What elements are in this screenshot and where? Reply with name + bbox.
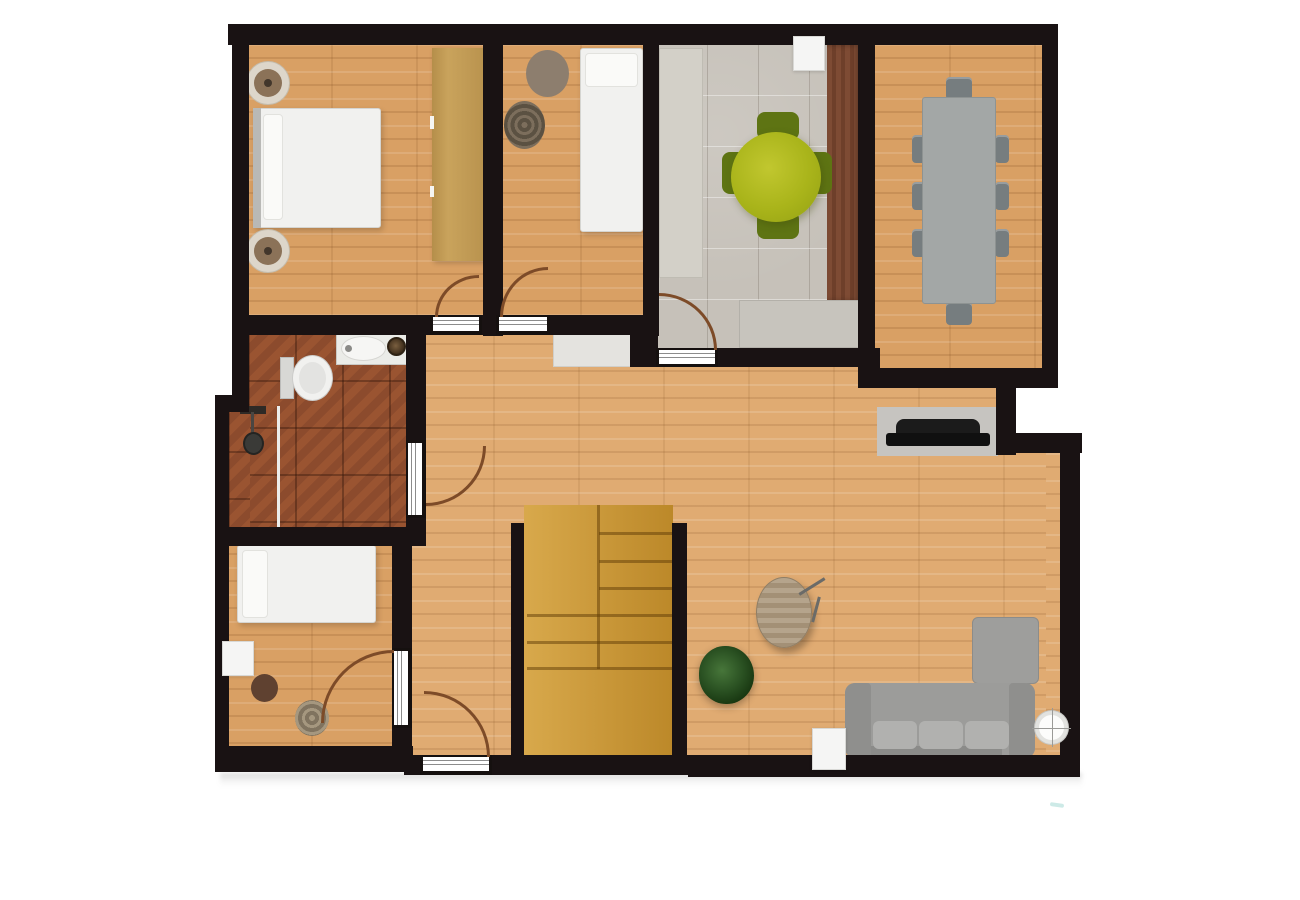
single-bed-3-pillow bbox=[242, 550, 268, 618]
exterior-notch bbox=[1016, 388, 1088, 435]
sofa-cushion-3 bbox=[965, 721, 1009, 749]
nightstand-bottom-knob bbox=[264, 247, 272, 255]
sofa-armrest-left bbox=[845, 683, 871, 758]
dining-chair-bottom bbox=[946, 302, 972, 325]
sofa-cushion-2 bbox=[919, 721, 963, 749]
wall-left-upper bbox=[232, 24, 249, 405]
ottoman bbox=[972, 617, 1039, 684]
dining-table bbox=[922, 97, 996, 304]
wardrobe bbox=[432, 48, 485, 261]
round-green-table bbox=[731, 132, 821, 222]
double-bed-headboard bbox=[253, 108, 261, 228]
stair-tread-5 bbox=[527, 641, 673, 644]
stair-tread-6 bbox=[527, 667, 673, 670]
wall-bathroom-bottom bbox=[215, 527, 426, 546]
wall-stairs-left bbox=[511, 523, 524, 757]
potted-plant bbox=[699, 646, 754, 704]
wall-stairs-right bbox=[672, 523, 687, 757]
stair-tread-1 bbox=[599, 532, 673, 535]
wall-bottom-left bbox=[215, 746, 413, 772]
bathroom-shower-alcove-floor bbox=[228, 404, 250, 531]
toilet-seat bbox=[299, 362, 326, 394]
wardrobe-handle-1 bbox=[430, 116, 434, 129]
kitchen-counter-left bbox=[659, 48, 703, 278]
wall-kitchen-dining bbox=[858, 24, 875, 388]
kitchen-window-box bbox=[793, 36, 825, 71]
shower-glass-partition bbox=[277, 406, 280, 533]
tv-base bbox=[886, 433, 990, 446]
wall-dining-bottom bbox=[858, 368, 1058, 388]
dining-chair-right-3 bbox=[995, 229, 1009, 257]
floor-lamp bbox=[1035, 711, 1068, 744]
door-threshold-bedroom-2 bbox=[496, 315, 550, 335]
sofa-armrest-right bbox=[1009, 683, 1035, 758]
side-table-round bbox=[756, 577, 812, 648]
artifact-mark bbox=[1050, 802, 1064, 808]
bathroom-sink bbox=[387, 337, 406, 356]
double-bed-pillow bbox=[263, 114, 283, 220]
door-threshold-bathroom bbox=[406, 440, 426, 518]
wall-bedroom2-kitchen bbox=[643, 24, 659, 336]
bedroom-3-window-box bbox=[222, 641, 254, 676]
nightstand-top-knob bbox=[264, 79, 272, 87]
stair-divider bbox=[597, 505, 600, 669]
wall-bottom-right bbox=[688, 755, 1080, 777]
door-threshold-entry bbox=[420, 755, 492, 775]
shower-head bbox=[243, 432, 264, 455]
wall-left-lower bbox=[215, 404, 229, 754]
stair-tread-3 bbox=[599, 587, 673, 590]
living-room-white-box bbox=[812, 728, 846, 770]
door-threshold-bedroom-1 bbox=[430, 315, 482, 335]
dining-chair-right-1 bbox=[995, 135, 1009, 163]
sofa-cushion-1 bbox=[873, 721, 917, 749]
wardrobe-handle-2 bbox=[430, 186, 434, 197]
round-rug-ringed bbox=[504, 101, 545, 149]
wall-bedroom-divider bbox=[483, 24, 503, 336]
dining-chair-right-2 bbox=[995, 182, 1009, 210]
small-rug-dark bbox=[251, 674, 278, 702]
floor-plan bbox=[0, 0, 1300, 900]
kitchen-cabinet-bottom bbox=[739, 300, 859, 348]
stair-tread-4 bbox=[527, 614, 673, 617]
door-threshold-kitchen bbox=[656, 348, 718, 367]
bathtub-faucet bbox=[345, 345, 352, 352]
wall-right-upper bbox=[1042, 24, 1058, 374]
round-rug-large bbox=[526, 50, 569, 97]
door-threshold-bedroom-3 bbox=[392, 648, 412, 728]
single-bed-2-pillow bbox=[585, 53, 638, 87]
stair-tread-2 bbox=[599, 560, 673, 563]
